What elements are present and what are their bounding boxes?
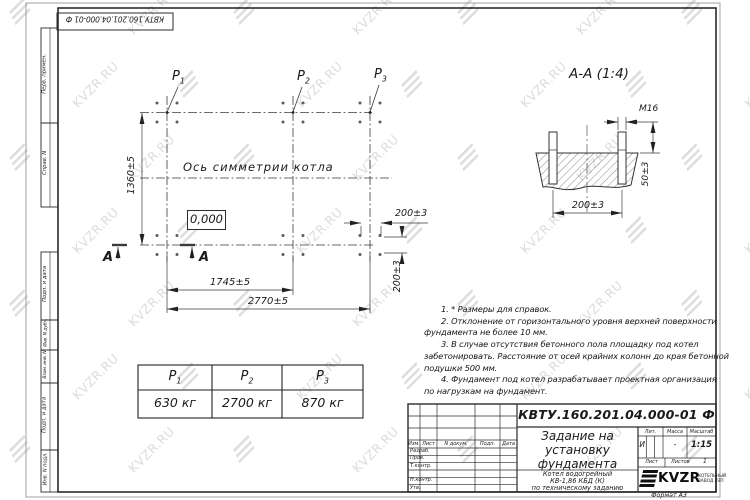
col-podp: Подп. <box>475 442 500 448</box>
note-line: фундамента не более 10 мм. <box>424 327 717 339</box>
note-line: 2. Отклонение от горизонтального уровня … <box>424 316 717 328</box>
plan-point-label-2: P2 <box>297 70 310 86</box>
mass-value: - <box>663 441 687 450</box>
bolt-thread-label: M16 <box>639 105 658 115</box>
margin-cell-inv-dubl: Инв. N дубл. <box>43 318 48 348</box>
load-table-header-2: P2 <box>212 370 282 386</box>
scale-value: 1:15 <box>687 441 716 450</box>
dim-1745: 1745±5 <box>200 277 260 288</box>
plan-view <box>112 85 428 313</box>
dim-2770: 2770±5 <box>238 296 298 307</box>
kvzr-logo-text: KVZR <box>658 471 700 486</box>
sheet-label: Лист <box>638 460 665 466</box>
section-cut-marks <box>112 245 195 259</box>
row-utv: Утв. <box>410 486 421 492</box>
lit-value: И <box>638 441 646 449</box>
margin-cell-podp-data-1: Подп. и дата <box>43 250 49 318</box>
mass-label: Масса <box>663 430 687 436</box>
margin-cell-sprav-n: Справ. N <box>43 121 49 205</box>
load-table-value-2: 2700 кг <box>212 396 282 410</box>
title-block-title: Задание на установку фундамента <box>519 429 636 471</box>
load-table-header-1: P1 <box>138 370 212 386</box>
row-razrab: Разраб. <box>410 449 430 455</box>
sheets-label: Листов <box>671 460 690 466</box>
col-data: Дата <box>500 442 517 448</box>
note-line: по нагрузкам на фундамент. <box>424 386 717 398</box>
dim-200-vertical: 200±3 <box>393 256 403 296</box>
note-line: 4. Фундамент под котел разрабатывает про… <box>424 374 717 386</box>
margin-cell-vzam-inv: Взам. инв. N <box>43 348 48 381</box>
load-table-value-1: 630 кг <box>138 396 212 410</box>
lit-label: Лит. <box>638 430 663 436</box>
col-dokum: N докум. <box>437 442 475 448</box>
plan-dimensions <box>142 113 428 313</box>
section-letter-right: А <box>199 251 209 265</box>
kvzr-logo-caption: КОТЕЛЬНЫЙ ЗАВОД РЭП <box>698 474 726 484</box>
section-letter-left: А <box>103 251 113 265</box>
format-label: Формат А3 <box>629 493 709 500</box>
anchor-bolt-dots <box>156 102 382 257</box>
margin-cell-podp-data-2: Подп. и дата <box>43 381 49 448</box>
load-table-header-3: P3 <box>282 370 363 386</box>
dim-50: 50±3 <box>642 154 652 194</box>
margin-cell-inv-podl: Инв. N подл. <box>43 448 49 490</box>
note-line: подушки 500 мм. <box>424 363 717 375</box>
notes-block: 1. * Размеры для справок.2. Отклонение о… <box>424 304 717 398</box>
plan-point-label-3: P3 <box>374 68 387 84</box>
note-line: 1. * Размеры для справок. <box>424 304 717 316</box>
note-line: 3. В случае отсутствия бетонного пола пл… <box>424 339 717 351</box>
plan-point-label-1: P1 <box>172 70 185 86</box>
elevation-mark-box: 0,000 <box>187 210 226 230</box>
elevation-value: 0,000 <box>188 213 225 226</box>
boiler-symmetry-axis-label: Ось симметрии котла <box>183 161 334 174</box>
dim-1360: 1360±5 <box>127 155 137 195</box>
top-stamp-doc-number: КВТУ.160.201.04.000-01 Ф <box>57 14 173 22</box>
dim-200-section: 200±3 <box>558 201 618 211</box>
scale-label: Масштаб <box>687 430 716 436</box>
note-line: забетонировать. Расстояние от осей крайн… <box>424 351 717 363</box>
row-nkontr: Н.контр. <box>410 478 432 484</box>
col-list: Лист <box>419 442 438 448</box>
title-block-product: Котел водогрейный КВ-1,86 КБД (К) по тех… <box>519 471 636 493</box>
section-title: А-А (1:4) <box>558 67 640 82</box>
load-table-value-3: 870 кг <box>282 396 363 410</box>
row-tkontr: Т.контр. <box>410 464 432 470</box>
row-prov: Пров. <box>410 456 425 462</box>
title-block-doc-number: КВТУ.160.201.04.000-01 Ф <box>517 408 716 422</box>
margin-cell-perv-primen: Перв. примен. <box>43 26 49 121</box>
drawing-sheet: KVZR.RUKVZR.RUKVZR.RUKVZR.RUKVZR.RUKVZR.… <box>0 0 750 500</box>
dim-200-horizontal: 200±3 <box>395 209 427 219</box>
sheets-value: 1 <box>703 459 707 466</box>
point-leaders <box>166 85 379 114</box>
